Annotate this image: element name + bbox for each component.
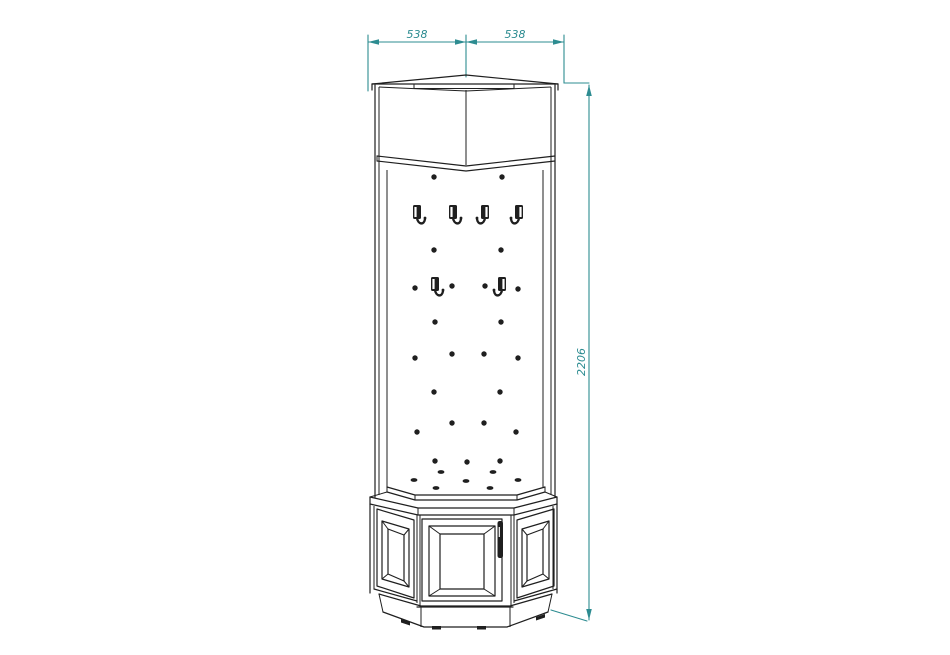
peg-hole-dot <box>438 470 445 474</box>
peg-hole-dot <box>411 478 418 482</box>
coat-hook-icon <box>476 205 489 223</box>
page: 538 538 2206 <box>0 0 950 655</box>
coat-hook-icon <box>431 277 444 295</box>
peg-hole-dot <box>431 247 436 252</box>
peg-hole-dot <box>414 429 419 434</box>
coat-hook-icon <box>449 205 462 223</box>
peg-hole-dot <box>482 283 487 288</box>
peg-hole-dot <box>481 420 486 425</box>
side-panels <box>375 85 555 497</box>
door-handle-icon <box>498 521 504 558</box>
left-angled-door <box>374 509 417 603</box>
extension-line-bottom <box>551 610 587 621</box>
dimension-lines: 538 538 2206 <box>368 28 592 621</box>
peg-hole-dot <box>412 355 417 360</box>
peg-hole-dot <box>515 478 522 482</box>
extension-line-right <box>564 35 589 83</box>
peg-hole-dot <box>498 319 503 324</box>
peg-hole-dot <box>497 389 502 394</box>
peg-hole-dot <box>515 286 520 291</box>
peg-hole-dot <box>432 319 437 324</box>
cabinet-drawing <box>370 75 558 630</box>
dimension-label-width-left: 538 <box>407 28 428 41</box>
peg-hole-dot <box>513 429 518 434</box>
coat-hook-icon <box>413 205 426 223</box>
coat-hook-icon <box>493 277 506 295</box>
peg-hole-dot <box>487 486 494 490</box>
peg-hole-dot <box>497 458 502 463</box>
dimension-label-width-right: 538 <box>505 28 526 41</box>
peg-hole-dot <box>431 174 436 179</box>
peg-hole-dot <box>499 174 504 179</box>
dimension-arrow-icon <box>368 39 592 620</box>
seat-shelf <box>387 487 545 500</box>
center-door <box>417 515 513 607</box>
peg-hole-dot <box>432 458 437 463</box>
peg-hole-dot <box>464 459 469 464</box>
peg-hole-dot <box>490 470 497 474</box>
open-shelf-compartment <box>377 87 555 171</box>
furniture-technical-drawing: 538 538 2206 <box>0 0 950 655</box>
peg-hole-dot <box>481 351 486 356</box>
plinth <box>379 594 552 630</box>
peg-holes-layer <box>411 174 522 490</box>
peg-hole-dot <box>498 247 503 252</box>
right-angled-door <box>514 509 557 603</box>
peg-hole-dot <box>515 355 520 360</box>
peg-hole-dot <box>463 479 470 483</box>
peg-hole-dot <box>433 486 440 490</box>
peg-hole-dot <box>449 283 454 288</box>
coat-hooks-layer <box>413 205 523 295</box>
peg-hole-dot <box>449 420 454 425</box>
peg-hole-dot <box>431 389 436 394</box>
dimension-label-height: 2206 <box>575 348 588 376</box>
coat-hook-icon <box>510 205 523 223</box>
peg-hole-dot <box>412 285 417 290</box>
peg-hole-dot <box>449 351 454 356</box>
